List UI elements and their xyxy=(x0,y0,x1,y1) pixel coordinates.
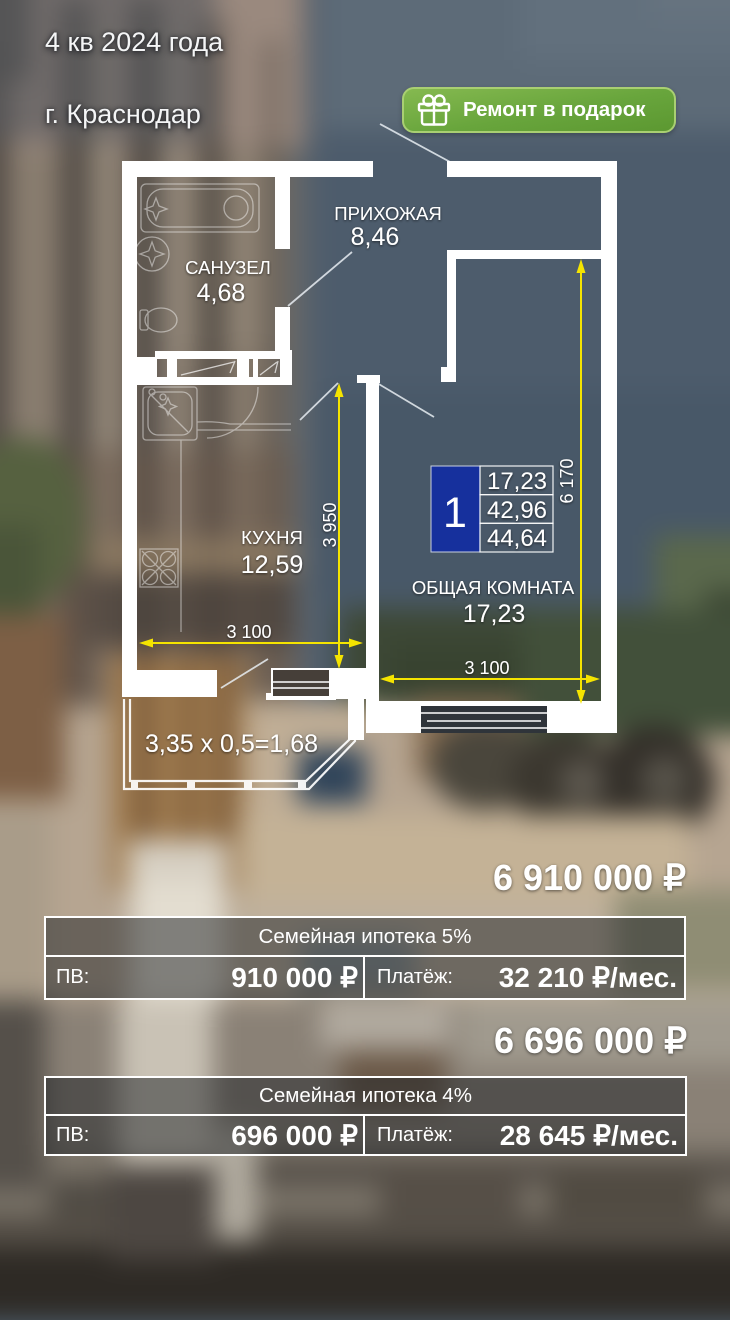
svg-text:6 170: 6 170 xyxy=(557,458,577,503)
svg-text:ОБЩАЯ КОМНАТА: ОБЩАЯ КОМНАТА xyxy=(412,577,575,598)
svg-text:3 100: 3 100 xyxy=(226,622,271,642)
svg-text:САНУЗЕЛ: САНУЗЕЛ xyxy=(185,257,271,278)
svg-text:17,23: 17,23 xyxy=(463,600,526,628)
svg-text:8,46: 8,46 xyxy=(351,223,400,251)
svg-text:КУХНЯ: КУХНЯ xyxy=(241,527,303,548)
svg-text:17,23: 17,23 xyxy=(487,468,547,495)
svg-text:3 950: 3 950 xyxy=(320,502,340,547)
svg-text:4,68: 4,68 xyxy=(197,279,246,307)
svg-text:1: 1 xyxy=(443,489,467,537)
svg-text:12,59: 12,59 xyxy=(241,551,304,579)
svg-text:ПРИХОЖАЯ: ПРИХОЖАЯ xyxy=(334,203,441,224)
svg-text:44,64: 44,64 xyxy=(487,525,547,552)
svg-text:3 100: 3 100 xyxy=(464,658,509,678)
svg-text:42,96: 42,96 xyxy=(487,497,547,524)
svg-text:3,35 х 0,5=1,68: 3,35 х 0,5=1,68 xyxy=(145,730,318,758)
